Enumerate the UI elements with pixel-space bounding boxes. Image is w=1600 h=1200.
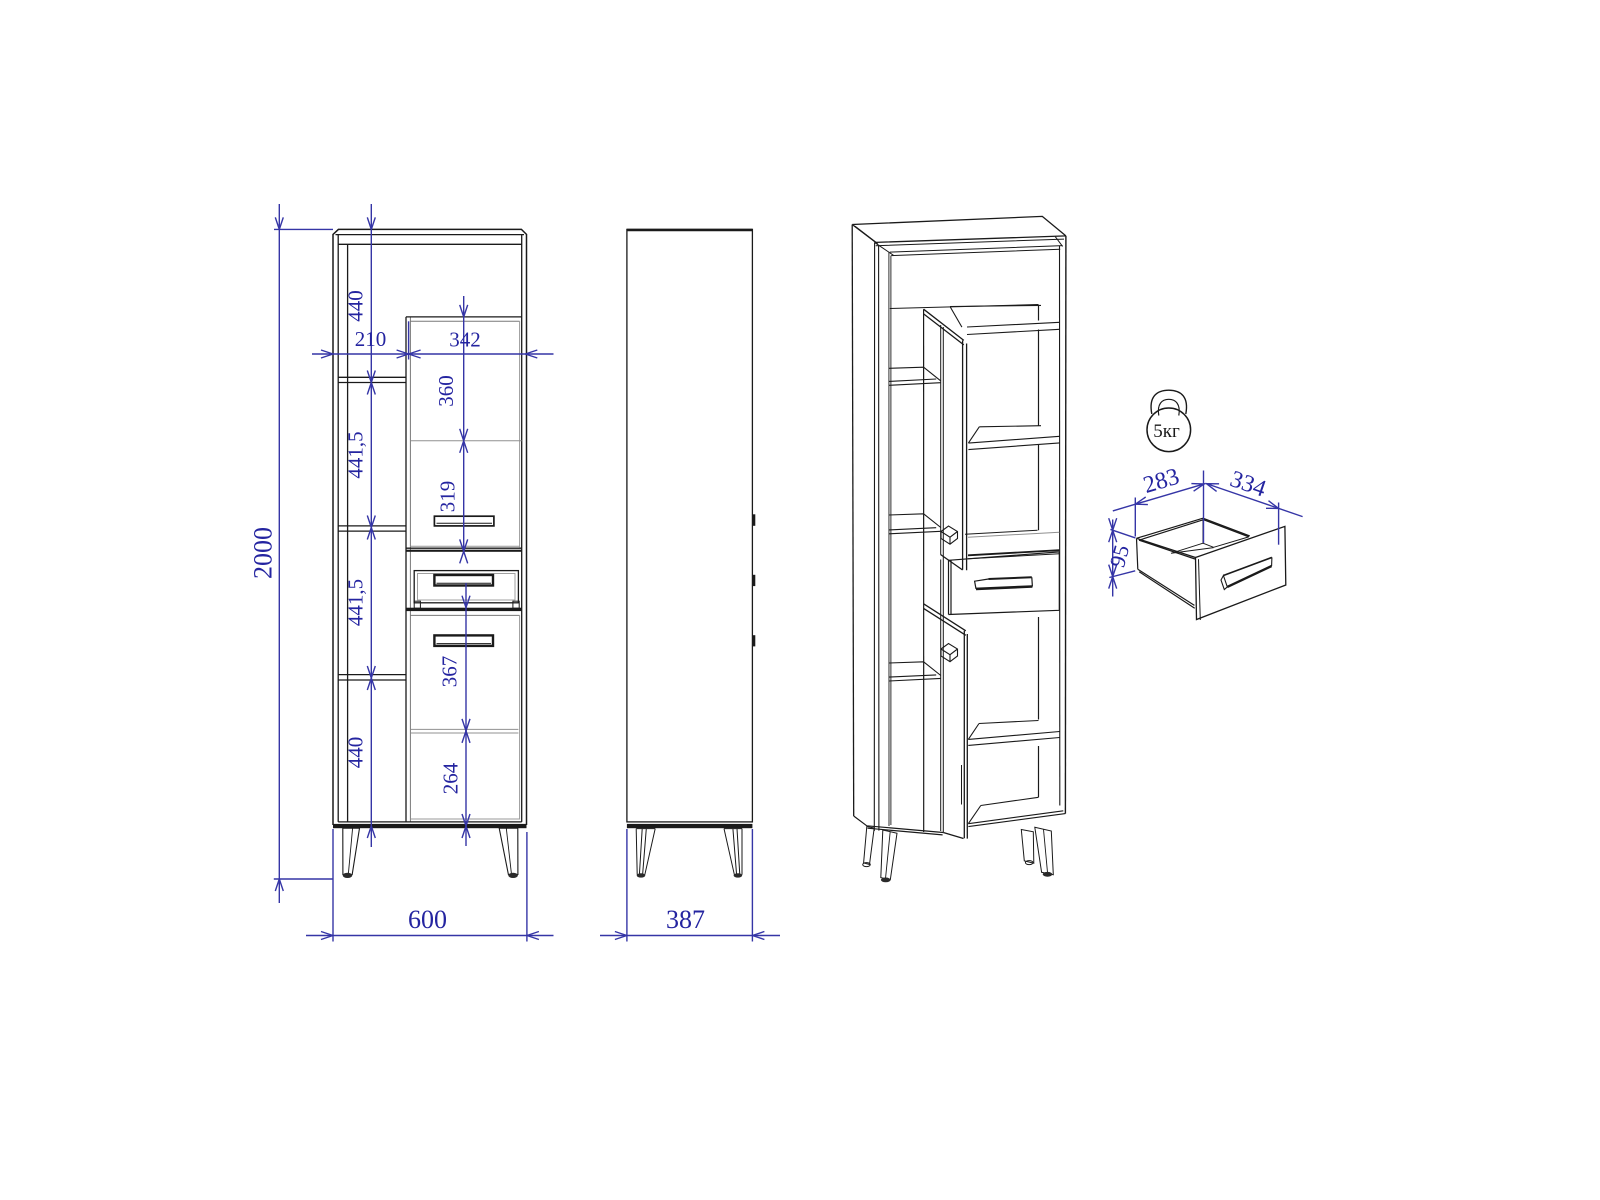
svg-text:210: 210: [355, 327, 387, 351]
svg-text:342: 342: [449, 328, 481, 352]
svg-text:264: 264: [439, 762, 463, 794]
svg-text:5кг: 5кг: [1153, 421, 1180, 442]
svg-text:360: 360: [434, 375, 458, 407]
svg-text:441,5: 441,5: [344, 579, 368, 626]
svg-text:2000: 2000: [249, 527, 278, 579]
svg-text:440: 440: [344, 737, 368, 769]
svg-text:367: 367: [438, 656, 462, 688]
svg-text:441,5: 441,5: [344, 431, 368, 478]
svg-text:283: 283: [1140, 464, 1182, 499]
svg-text:440: 440: [344, 290, 368, 322]
svg-text:600: 600: [408, 905, 447, 934]
svg-text:387: 387: [666, 905, 705, 934]
svg-text:319: 319: [436, 481, 460, 513]
svg-text:334: 334: [1227, 466, 1270, 502]
